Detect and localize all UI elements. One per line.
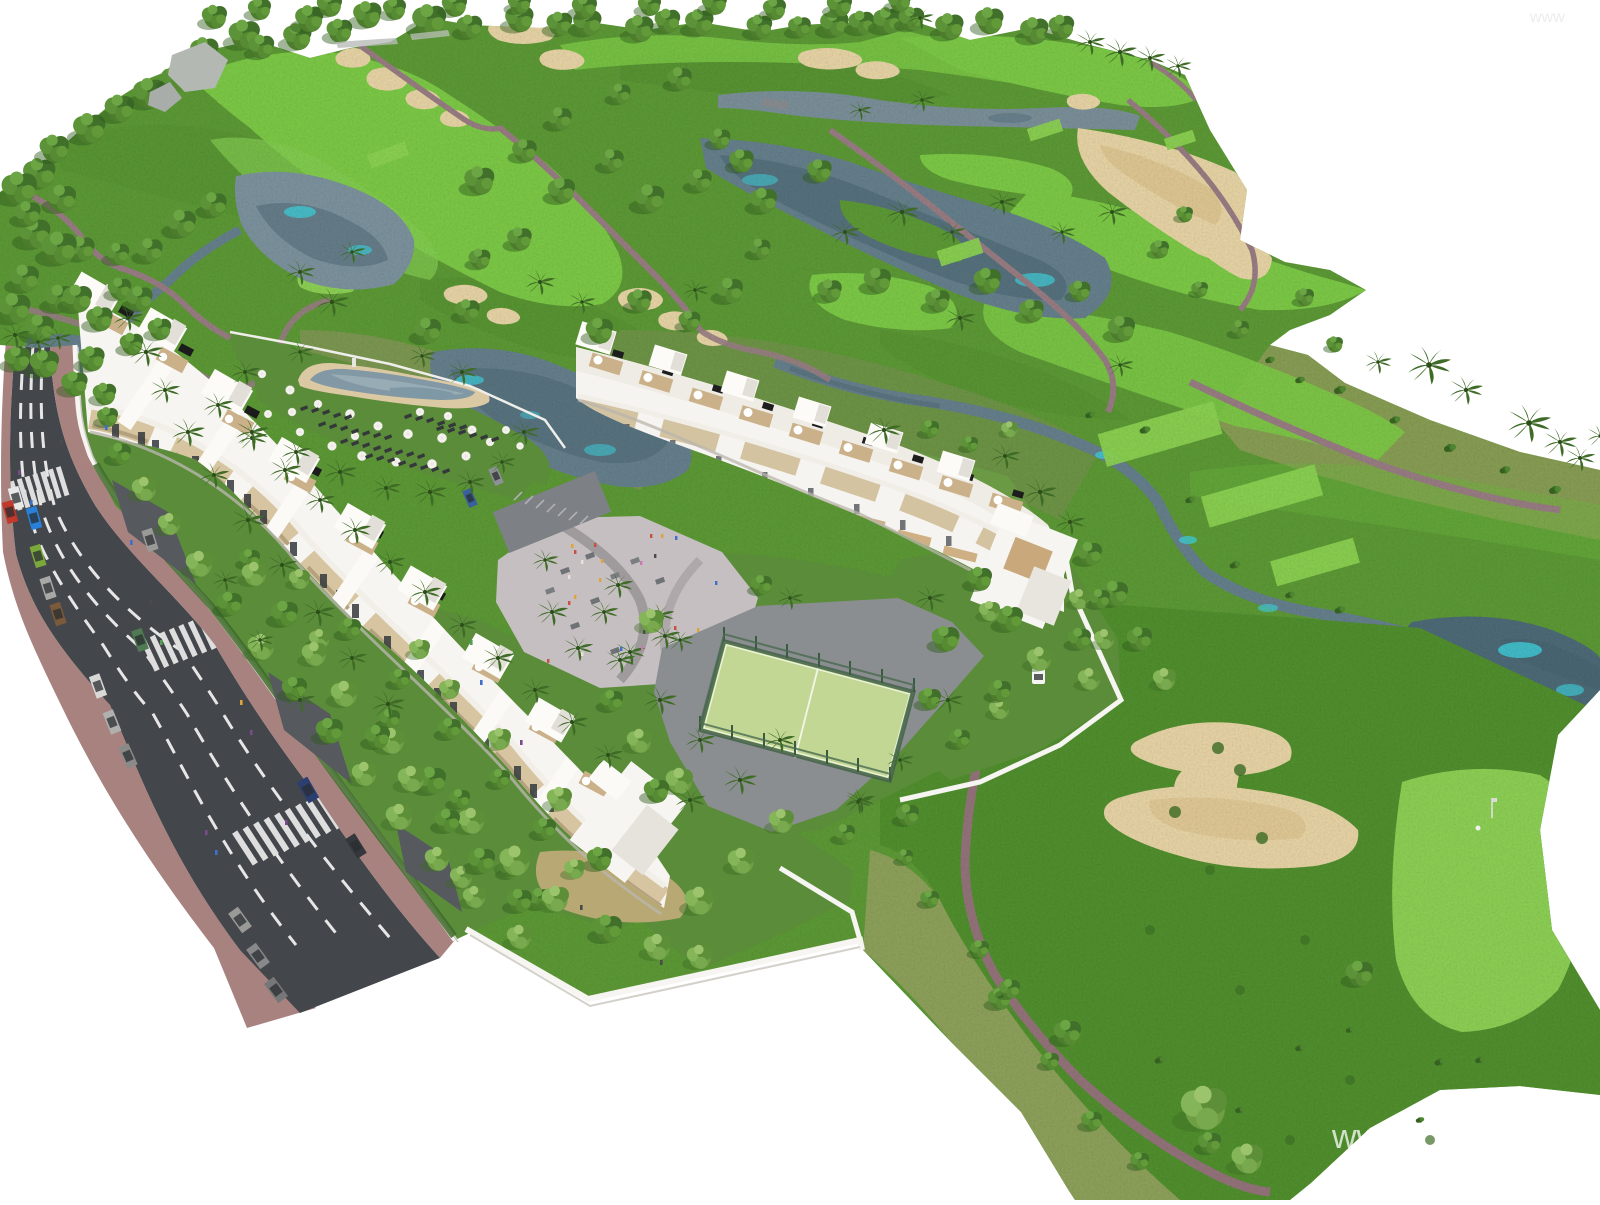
svg-text:www: www — [1529, 9, 1565, 26]
svg-text:www: www — [1331, 1118, 1406, 1156]
